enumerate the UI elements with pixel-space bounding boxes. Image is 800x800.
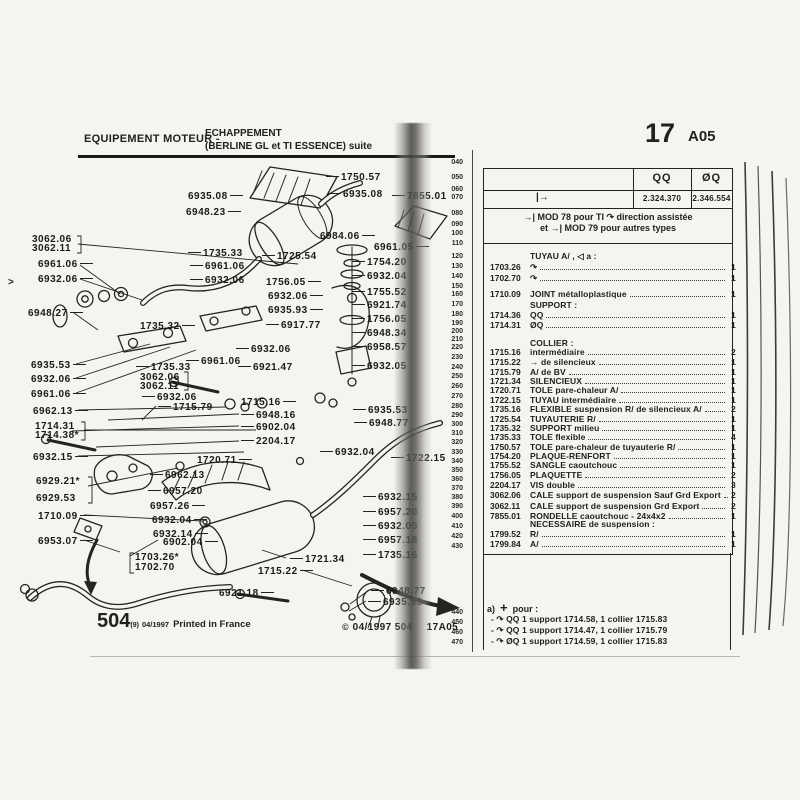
dotted-leader xyxy=(578,487,725,488)
diagram-label: 1735.32 xyxy=(140,321,195,332)
diagram-label: 6957.20 xyxy=(148,486,203,497)
diagram-label: 6932.06 xyxy=(268,291,323,302)
diagram-label: 6902.04 xyxy=(163,537,218,548)
part-description: VIS double xyxy=(530,480,575,490)
table-row: 1714.36QQ1 xyxy=(490,310,728,320)
footnote-title: pour : xyxy=(513,604,539,614)
diagram-label: 1715.79 xyxy=(158,402,213,413)
diagram-label: 1710.09 xyxy=(38,511,93,522)
table-row: 1714.31ØQ1 xyxy=(490,320,728,330)
part-description: FLEXIBLE suspension R/ de silencieux A/ xyxy=(530,404,702,414)
serial-value-b: 2.346.554 xyxy=(691,194,732,203)
diagram-label: 6935.53 xyxy=(31,360,86,371)
table-border-extension xyxy=(730,553,731,650)
table-row: 2204.17VIS double3 xyxy=(490,480,728,490)
part-description: JOINT métalloplastique xyxy=(530,289,627,299)
diagram-label: 6921.47 xyxy=(238,362,293,373)
diagram-label: 6961.06 xyxy=(190,261,245,272)
table-row: 1735.33TOLE flexible4 xyxy=(490,432,728,442)
diagram-label: 6932.15 xyxy=(33,452,88,463)
dotted-leader xyxy=(702,508,725,509)
part-description: ØQ xyxy=(530,320,543,330)
part-ref: 3062.06 xyxy=(490,490,530,500)
part-description: PLAQUETTE xyxy=(530,470,582,480)
page-edge-lines xyxy=(735,140,797,655)
diagram-label: 6932.04 xyxy=(152,515,207,526)
diagram-label: 6929.53 xyxy=(36,493,76,504)
part-ref: 1756.05 xyxy=(490,470,530,480)
diagram-label: 1715.22 xyxy=(258,566,313,577)
dotted-leader xyxy=(705,411,725,412)
table-row: 1755.52SANGLE caoutchouc1 xyxy=(490,460,728,470)
part-ref: 1710.09 xyxy=(490,289,530,299)
diagram-label: 6984.06 xyxy=(320,231,375,242)
part-ref: 1714.31 xyxy=(490,320,530,330)
table-row-line xyxy=(484,190,732,191)
diagram-label: 6962.13 xyxy=(33,406,88,417)
diagram-label: 6962.13 xyxy=(150,470,205,481)
diagram-label: 6932.06 xyxy=(31,374,86,385)
part-description: NECESSAIRE de suspension : xyxy=(530,519,655,529)
diagram-label: 6953.07 xyxy=(38,536,93,547)
diagram-label: 6961.06 xyxy=(31,389,86,400)
table-group-row: TUYAU A/ , ◁ a : xyxy=(490,251,728,261)
table-row: 1715.16intermédiaire2 xyxy=(490,347,728,357)
dotted-leader xyxy=(621,392,725,393)
part-description: ↷ xyxy=(530,273,537,283)
book-spine-shadow xyxy=(394,123,432,669)
table-group-row: SUPPORT : xyxy=(490,300,728,310)
diagram-label: 6948.16 xyxy=(241,410,296,421)
table-row: 1703.26↷1 xyxy=(490,262,728,272)
model-note-line1: →| MOD 78 pour TI ↷ direction assistée xyxy=(484,212,732,223)
table-row-line xyxy=(484,208,732,209)
diagram-label: 6932.06 xyxy=(190,275,245,286)
part-ref: 1799.52 xyxy=(490,529,530,539)
table-row: 1702.70↷1 xyxy=(490,273,728,283)
diagram-label: 6948.27 xyxy=(28,308,83,319)
part-description: TOLE flexible xyxy=(530,432,585,442)
part-ref: 1799.84 xyxy=(490,539,530,549)
diagram-label: 6921.18 xyxy=(219,588,274,599)
model-note-line2: et →| MOD 79 pour autres types xyxy=(484,223,732,234)
dotted-leader xyxy=(542,546,725,547)
diagram-label: 1725.54 xyxy=(262,251,317,262)
dotted-leader xyxy=(619,402,725,403)
part-ref: 1715.16 xyxy=(490,347,530,357)
table-border-extension xyxy=(483,553,484,650)
diagram-label: 1756.05 xyxy=(266,277,321,288)
dotted-leader xyxy=(724,497,728,498)
part-ref: 1755.52 xyxy=(490,460,530,470)
table-group-row: NECESSAIRE de suspension : xyxy=(490,519,728,529)
footnote-marker: a) xyxy=(487,604,495,614)
diagram-label: 6935.08 xyxy=(188,191,243,202)
part-ref: 3062.11 xyxy=(490,501,530,511)
diagram-label: 1750.57 xyxy=(326,172,381,183)
part-description: R/ xyxy=(530,529,539,539)
dotted-leader xyxy=(630,296,725,297)
note-item: - ↷ ØQ 1 support 1714.59, 1 collier 1715… xyxy=(491,636,667,647)
part-ref: 1715.22 xyxy=(490,357,530,367)
diagram-label: 6961.06 xyxy=(186,356,241,367)
dotted-leader xyxy=(585,477,725,478)
diagram-label: 1735.33 xyxy=(188,248,243,259)
page-number: 17 xyxy=(645,118,675,149)
note-item: - ↷ QQ 1 support 1714.47, 1 collier 1715… xyxy=(491,625,667,636)
diagram-label: 6902.04 xyxy=(241,422,296,433)
part-description: → de silencieux xyxy=(530,357,596,367)
parts-table: QQ ØQ |→ 2.324.370 2.346.554 →| MOD 78 p… xyxy=(483,168,733,555)
part-ref: 1714.36 xyxy=(490,310,530,320)
part-ref: 1703.26 xyxy=(490,262,530,272)
dotted-leader xyxy=(678,449,725,450)
dotted-leader xyxy=(540,269,725,270)
dotted-leader xyxy=(602,430,725,431)
diagram-label: 6932.04 xyxy=(320,447,375,458)
diagram-label: > xyxy=(8,277,14,288)
table-row: 1756.05PLAQUETTE2 xyxy=(490,470,728,480)
part-description: QQ xyxy=(530,310,543,320)
diagram-label: 6935.08 xyxy=(328,189,383,200)
part-ref: 1720.71 xyxy=(490,385,530,395)
dotted-leader xyxy=(614,458,725,459)
diagram-label: 6961.06 xyxy=(38,259,93,270)
dotted-leader xyxy=(569,374,725,375)
dotted-leader xyxy=(599,364,725,365)
gearbox-symbol-column-a: QQ xyxy=(633,172,691,184)
diagram-label: 3062.11 xyxy=(140,381,179,392)
gearbox-symbol-column-b: ØQ xyxy=(691,172,732,184)
diagram-label: 1714.38* xyxy=(35,430,79,441)
dotted-leader xyxy=(546,317,725,318)
diagram-label: 6929.21* xyxy=(36,476,80,487)
arrow-from-bar-icon: |→ xyxy=(536,192,549,203)
model-note: →| MOD 78 pour TI ↷ direction assistée e… xyxy=(484,212,732,234)
part-description: TUYAU A/ , ◁ a : xyxy=(530,251,597,261)
part-ref: 1735.33 xyxy=(490,432,530,442)
part-ref: 1702.70 xyxy=(490,273,530,283)
table-row: 3062.06CALE support de suspension Sauf G… xyxy=(490,490,728,500)
table-row: 1720.71TOLE pare-chaleur A/1 xyxy=(490,385,728,395)
diagram-label: 2204.17 xyxy=(241,436,296,447)
footnote-header: a)+pour : xyxy=(487,600,538,615)
dotted-leader xyxy=(540,280,725,281)
diagram-label: 6957.26 xyxy=(150,501,205,512)
table-row: 3062.11CALE support de suspension Grd Ex… xyxy=(490,501,728,511)
part-description: CALE support de suspension Grd Export xyxy=(530,501,699,511)
table-row: 1735.16FLEXIBLE suspension R/ de silenci… xyxy=(490,404,728,414)
part-ref: 1735.16 xyxy=(490,404,530,414)
page-code: A05 xyxy=(688,128,716,145)
part-description: SUPPORT : xyxy=(530,300,577,310)
diagram-label: 1721.34 xyxy=(290,554,345,565)
note-item: - ↷ QQ 1 support 1714.58, 1 collier 1715… xyxy=(491,614,667,625)
part-description: A/ xyxy=(530,539,539,549)
plus-icon: + xyxy=(500,600,508,615)
diagram-label: 6948.23 xyxy=(186,207,241,218)
part-description: CALE support de suspension Sauf Grd Expo… xyxy=(530,490,721,500)
part-ref: 2204.17 xyxy=(490,480,530,490)
diagram-label: 1720.71 xyxy=(197,455,252,466)
diagram-label: 1702.70 xyxy=(135,562,175,573)
dotted-leader xyxy=(599,421,725,422)
part-description: SANGLE caoutchouc xyxy=(530,460,617,470)
table-row: 1799.52R/1 xyxy=(490,529,728,539)
part-description: TOLE pare-chaleur A/ xyxy=(530,385,618,395)
diagram-label: 3062.11 xyxy=(32,243,71,254)
table-row: 1799.84A/1 xyxy=(490,539,728,549)
part-description: ↷ xyxy=(530,262,537,272)
dotted-leader xyxy=(542,536,725,537)
diagram-label: 6932.06 xyxy=(236,344,291,355)
catalog-page: EQUIPEMENT MOTEUR - ECHAPPEMENT (BERLINE… xyxy=(0,0,800,800)
dotted-leader xyxy=(585,383,725,384)
dotted-leader xyxy=(588,354,725,355)
diagram-label: 1715.16 xyxy=(241,397,296,408)
diagram-label: 6932.06 xyxy=(38,274,93,285)
diagram-label: 6917.77 xyxy=(266,320,321,331)
diagram-label: 6935.93 xyxy=(268,305,323,316)
table-row: 1710.09JOINT métalloplastique1 xyxy=(490,289,728,299)
page-fold-line xyxy=(472,150,473,652)
serial-value-a: 2.324.370 xyxy=(633,194,691,203)
dotted-leader xyxy=(588,439,725,440)
table-row-line xyxy=(484,243,732,244)
dotted-leader xyxy=(546,327,725,328)
dotted-leader xyxy=(620,467,725,468)
part-description: intermédiaire xyxy=(530,347,585,357)
table-row: 1715.22→ de silencieux1 xyxy=(490,357,728,367)
